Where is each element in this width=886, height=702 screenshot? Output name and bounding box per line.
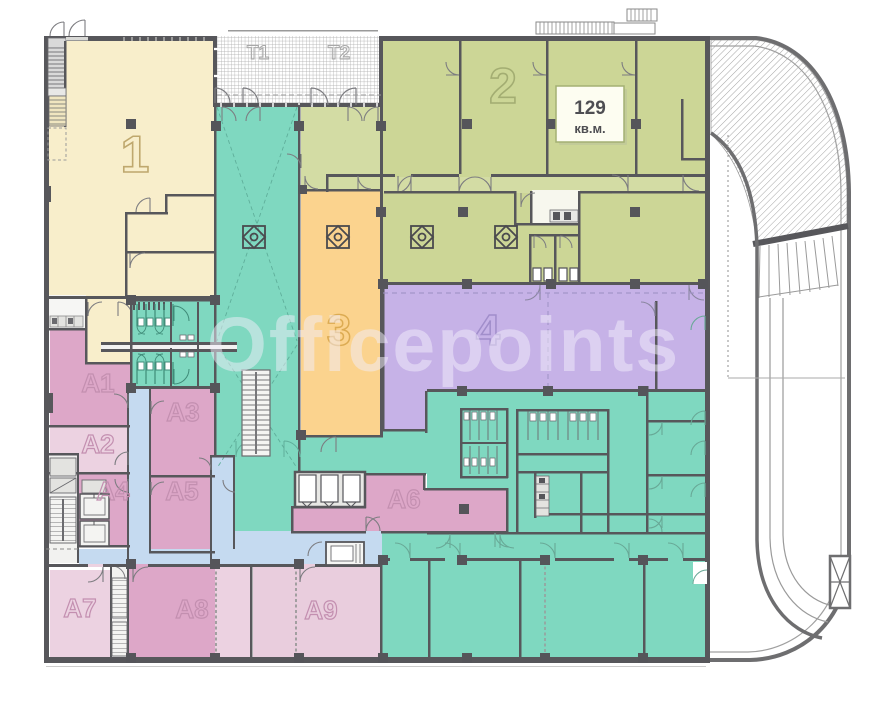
svg-text:A4: A4 bbox=[96, 476, 130, 506]
svg-text:A2: A2 bbox=[81, 429, 114, 459]
svg-text:A9: A9 bbox=[304, 595, 337, 625]
svg-text:A6: A6 bbox=[387, 484, 420, 514]
svg-text:A3: A3 bbox=[166, 397, 199, 427]
svg-text:129: 129 bbox=[574, 98, 606, 119]
svg-text:T1: T1 bbox=[247, 43, 270, 64]
svg-text:T2: T2 bbox=[328, 43, 350, 64]
svg-text:1: 1 bbox=[121, 126, 150, 184]
svg-text:Officepoints: Officepoints bbox=[207, 302, 680, 388]
svg-text:A1: A1 bbox=[81, 368, 114, 398]
svg-text:A7: A7 bbox=[63, 593, 96, 623]
svg-text:кв.м.: кв.м. bbox=[574, 121, 605, 136]
svg-text:A8: A8 bbox=[175, 594, 208, 624]
svg-text:A5: A5 bbox=[165, 476, 198, 506]
svg-text:2: 2 bbox=[489, 58, 517, 114]
